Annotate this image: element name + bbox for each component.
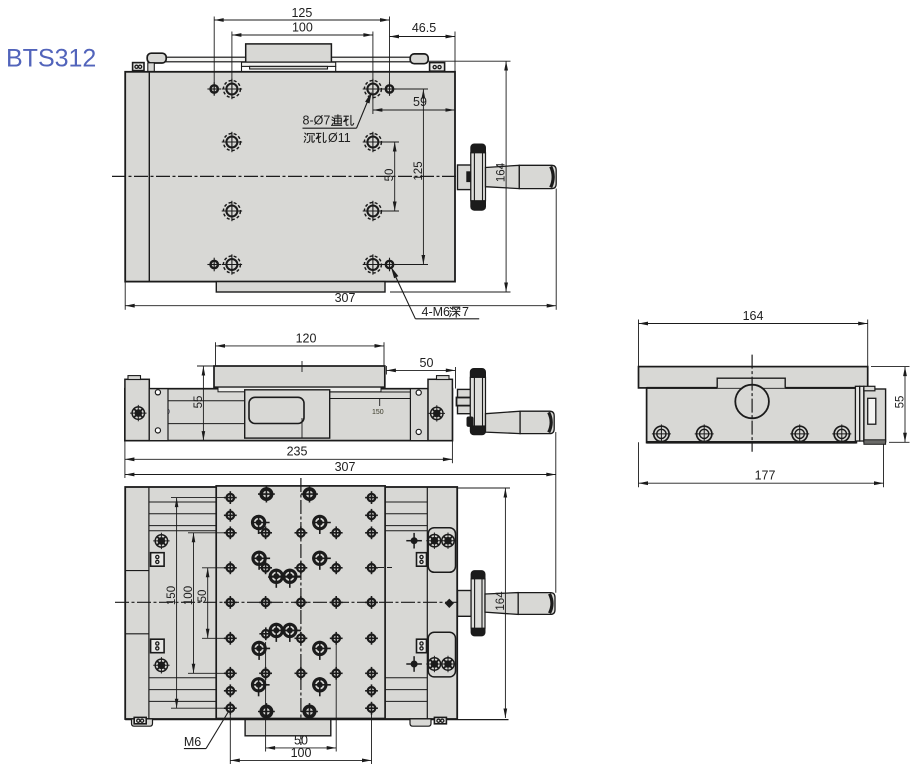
svg-text:177: 177 [755,469,776,483]
svg-text:8-Ø7: 8-Ø7 [303,114,331,128]
svg-text:150: 150 [372,409,384,416]
svg-text:46.5: 46.5 [412,21,436,35]
svg-text:100: 100 [292,21,313,35]
svg-text:120: 120 [296,331,317,345]
svg-text:164: 164 [495,591,507,611]
svg-text:125: 125 [413,161,425,180]
svg-text:M6: M6 [184,735,201,749]
svg-text:164: 164 [496,162,508,182]
svg-text:100: 100 [183,586,195,605]
svg-text:100: 100 [291,746,312,760]
svg-text:55: 55 [894,396,906,409]
svg-text:50: 50 [384,169,396,182]
svg-text:4-M6: 4-M6 [422,305,451,319]
svg-text:150: 150 [166,586,178,605]
svg-text:BTS312: BTS312 [6,45,96,73]
svg-text:55: 55 [193,396,205,409]
svg-text:125: 125 [291,6,312,20]
svg-text:307: 307 [335,291,356,305]
svg-text:Ø11: Ø11 [328,131,351,145]
svg-text:307: 307 [335,460,356,474]
svg-text:7: 7 [462,305,469,319]
svg-text:50: 50 [197,590,209,603]
svg-text:50: 50 [420,356,434,370]
svg-text:235: 235 [287,445,308,459]
svg-text:164: 164 [743,309,764,323]
